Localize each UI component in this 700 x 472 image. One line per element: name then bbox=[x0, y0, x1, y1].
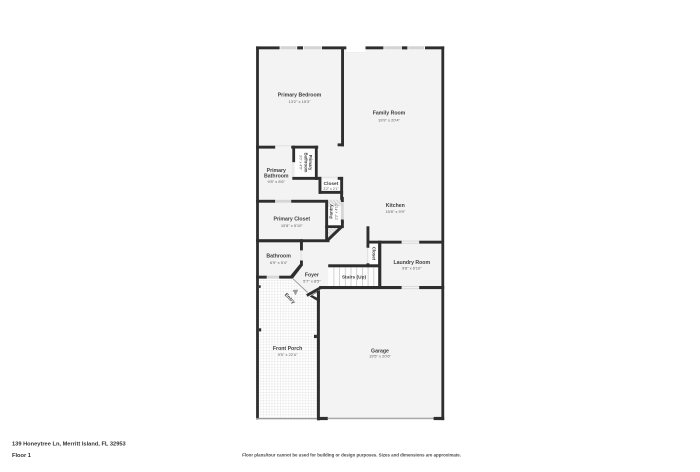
svg-text:6'9" x 5'4": 6'9" x 5'4" bbox=[270, 260, 288, 265]
svg-text:3'0" x 4'9": 3'0" x 4'9" bbox=[299, 155, 303, 171]
svg-text:15'8" x 9'9": 15'8" x 9'9" bbox=[385, 209, 405, 214]
svg-text:19'9" x 20'4": 19'9" x 20'4" bbox=[378, 117, 401, 122]
svg-text:5'7" x 8'5": 5'7" x 8'5" bbox=[303, 279, 321, 284]
svg-text:9'8" x 8'6": 9'8" x 8'6" bbox=[268, 179, 286, 184]
svg-text:Primary Closet: Primary Closet bbox=[273, 217, 310, 223]
svg-text:Primary Bedroom: Primary Bedroom bbox=[278, 92, 322, 98]
svg-text:13'2" x 15'3": 13'2" x 15'3" bbox=[289, 99, 312, 104]
svg-text:9'5" x 22'4": 9'5" x 22'4" bbox=[278, 352, 298, 357]
svg-text:10'8" x 5'10": 10'8" x 5'10" bbox=[281, 223, 304, 228]
svg-text:Kitchen: Kitchen bbox=[386, 203, 405, 209]
svg-text:Floor plans/tour cannot be use: Floor plans/tour cannot be used for buil… bbox=[242, 452, 461, 457]
svg-text:139 Honeytree Ln, Merritt Isla: 139 Honeytree Ln, Merritt Island, FL 329… bbox=[12, 441, 126, 447]
svg-text:9'8" x 6'10": 9'8" x 6'10" bbox=[402, 266, 422, 271]
svg-text:Pantry: Pantry bbox=[328, 204, 333, 219]
svg-text:Closet: Closet bbox=[371, 247, 376, 261]
svg-text:Floor 1: Floor 1 bbox=[12, 453, 31, 459]
svg-text:Bathroom: Bathroom bbox=[303, 153, 308, 173]
svg-text:Bathroom: Bathroom bbox=[266, 254, 291, 260]
svg-text:19'5" x 20'6": 19'5" x 20'6" bbox=[369, 354, 392, 359]
svg-text:3'2" x 2'1": 3'2" x 2'1" bbox=[323, 187, 339, 191]
svg-text:Front Porch: Front Porch bbox=[273, 346, 302, 352]
svg-text:Family Room: Family Room bbox=[373, 111, 406, 117]
svg-text:Foyer: Foyer bbox=[305, 273, 319, 279]
svg-text:Stairs (Up): Stairs (Up) bbox=[342, 274, 367, 280]
svg-text:2'3" x 4'10": 2'3" x 4'10" bbox=[334, 202, 338, 220]
